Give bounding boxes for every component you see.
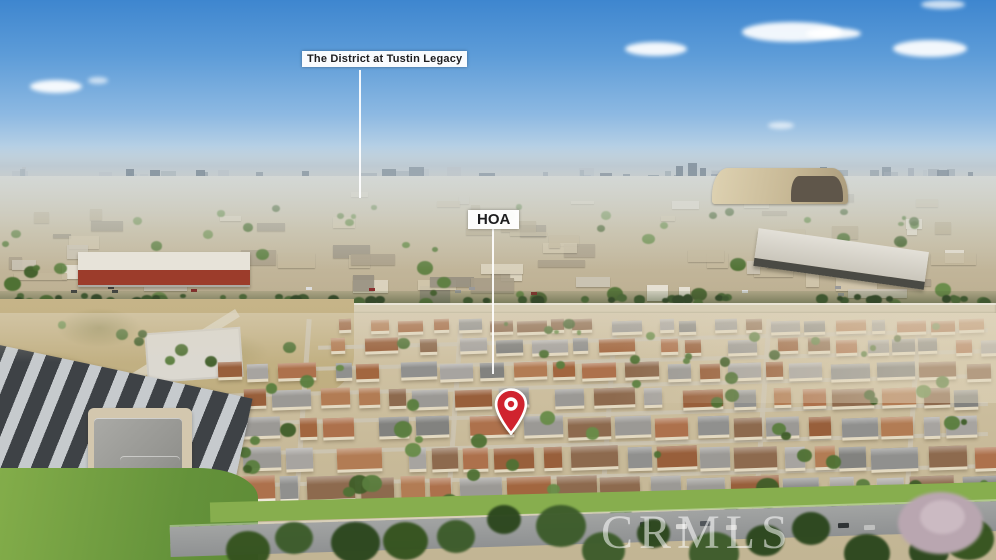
street-tree xyxy=(844,534,890,560)
hedge-tree xyxy=(715,295,722,301)
hedge-tree xyxy=(886,296,894,302)
street-tree xyxy=(536,505,586,548)
street-tree xyxy=(383,522,428,560)
city-skyline xyxy=(0,146,996,178)
car-on-street xyxy=(838,523,849,528)
cloud xyxy=(768,122,794,129)
hedge-tree xyxy=(960,296,968,302)
hoa-callout-label: HOA xyxy=(468,210,519,229)
cloud xyxy=(625,42,687,56)
hedge-tree xyxy=(722,296,728,301)
hedge-tree xyxy=(581,296,589,303)
crmls-watermark: CRMLS xyxy=(601,509,794,557)
hoa-callout-line xyxy=(492,229,494,374)
district-callout-label: The District at Tustin Legacy xyxy=(302,51,467,67)
red-retail-building xyxy=(78,252,250,287)
street-tree xyxy=(437,520,476,553)
pin-body xyxy=(496,390,526,434)
hedge-tree xyxy=(854,294,861,300)
hedge-tree xyxy=(950,295,957,301)
hedge-tree xyxy=(617,294,627,302)
street-tree xyxy=(487,505,521,534)
hedge-tree xyxy=(483,298,489,303)
cloud xyxy=(893,40,967,57)
street-tree xyxy=(275,522,314,555)
street-tree xyxy=(331,522,379,560)
pin-dot xyxy=(508,401,514,407)
hangar-door xyxy=(791,176,843,202)
aerial-photo: The District at Tustin Legacy HOA CRMLS xyxy=(0,0,996,560)
car-on-street xyxy=(864,525,875,530)
street-tree xyxy=(792,512,830,545)
hedge-tree xyxy=(942,295,952,303)
blimp-hangar-building xyxy=(712,168,848,204)
cloud xyxy=(30,80,82,93)
hedge-tree xyxy=(532,297,539,303)
hedge-tree xyxy=(180,294,186,299)
location-pin-icon xyxy=(493,388,529,435)
cloud xyxy=(921,0,965,9)
street-tree xyxy=(226,531,270,560)
flowering-tree-highlight xyxy=(920,500,965,534)
cloud xyxy=(806,28,861,39)
cloud xyxy=(88,77,108,84)
district-callout-line xyxy=(359,70,361,198)
